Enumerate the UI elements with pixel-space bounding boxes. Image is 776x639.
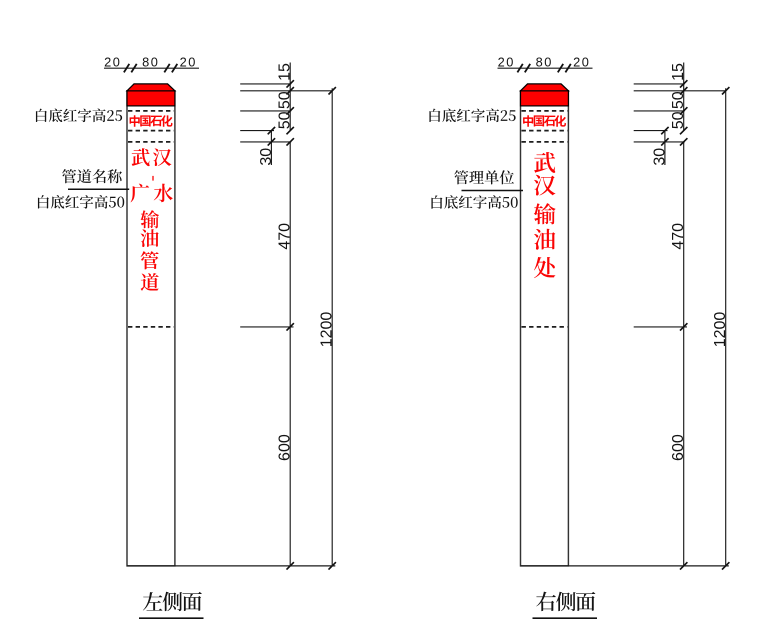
svg-text:20: 20 <box>180 54 197 69</box>
svg-text:50: 50 <box>670 111 687 129</box>
svg-text:20: 20 <box>573 54 590 69</box>
svg-text:470: 470 <box>670 223 687 250</box>
svg-text:50: 50 <box>670 91 687 109</box>
svg-text:1200: 1200 <box>712 312 729 348</box>
svg-text:15: 15 <box>670 63 687 81</box>
svg-text:470: 470 <box>277 223 294 250</box>
svg-text:50: 50 <box>277 111 294 129</box>
svg-text:1200: 1200 <box>319 312 336 348</box>
svg-text:15: 15 <box>277 63 294 81</box>
svg-text:30: 30 <box>258 148 275 166</box>
svg-text:80: 80 <box>142 54 159 69</box>
svg-text:80: 80 <box>536 54 553 69</box>
svg-text:600: 600 <box>276 434 293 461</box>
svg-text:20: 20 <box>498 54 515 69</box>
svg-text:50: 50 <box>277 91 294 109</box>
svg-text:30: 30 <box>652 148 669 166</box>
svg-text:20: 20 <box>104 54 121 69</box>
svg-text:600: 600 <box>670 434 687 461</box>
